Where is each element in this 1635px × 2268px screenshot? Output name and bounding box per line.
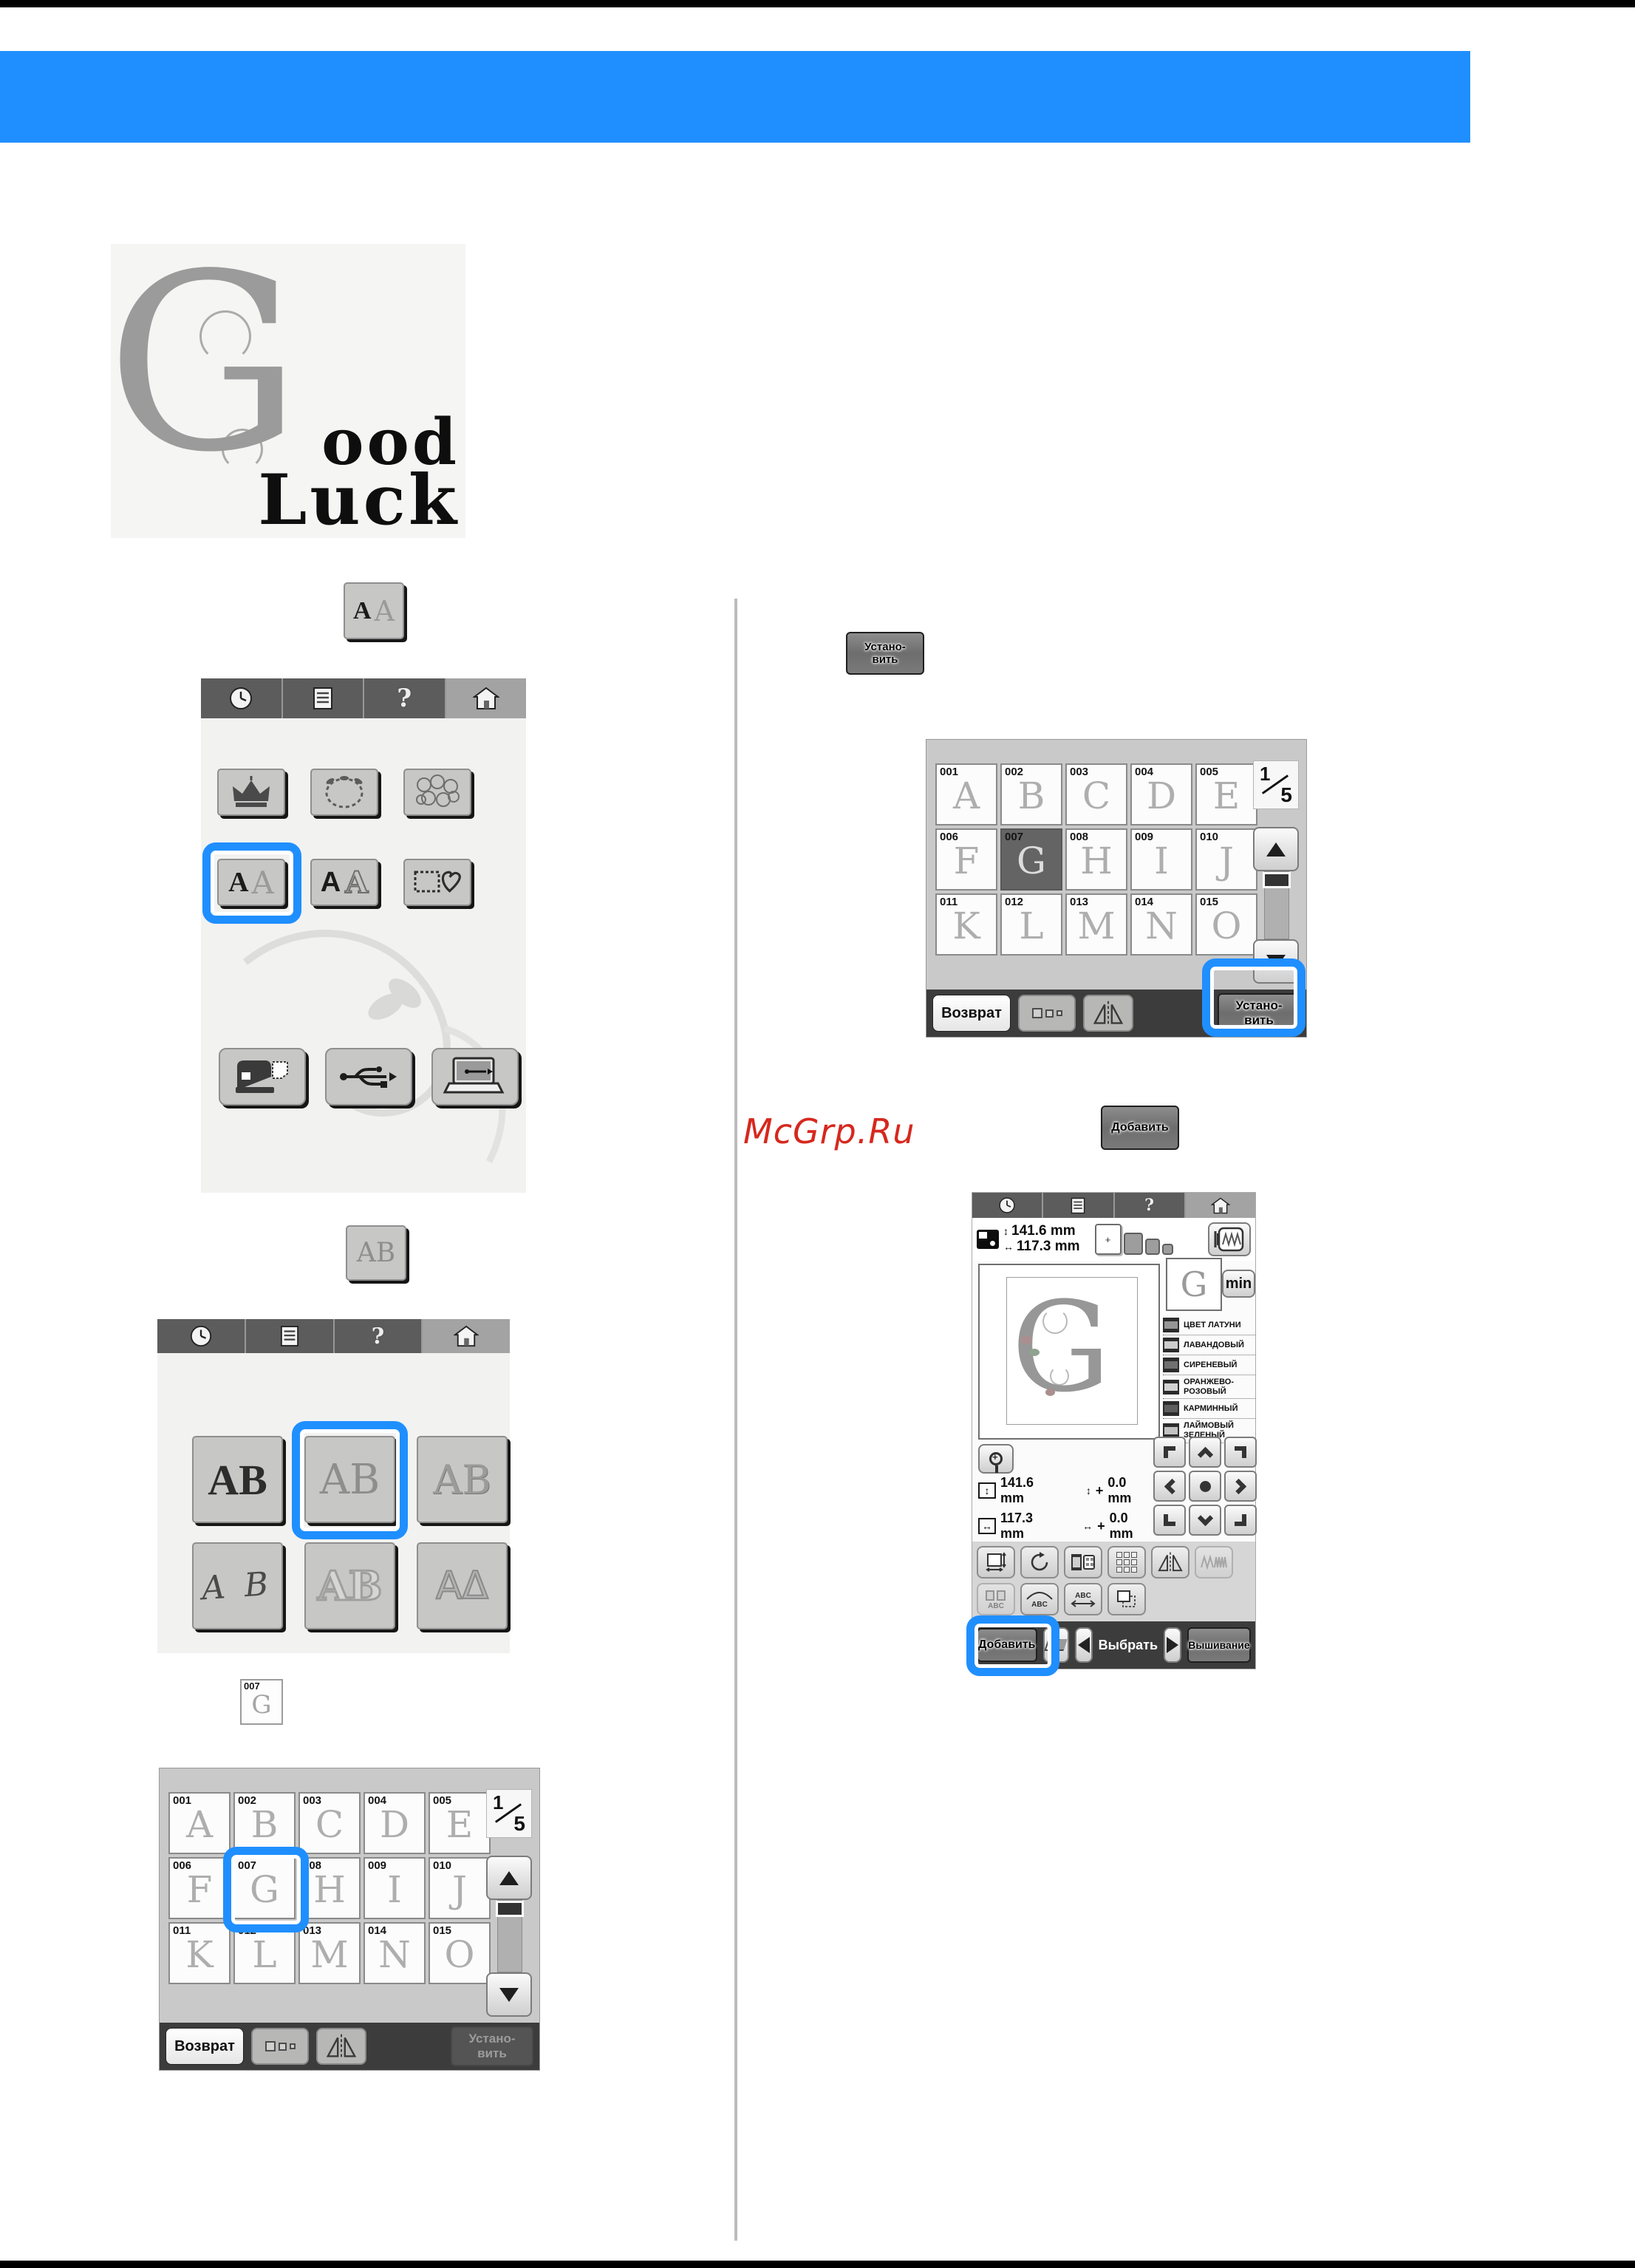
clock-icon	[189, 1324, 213, 1348]
help-icon: ?	[372, 1324, 385, 1349]
tile-number: 013	[303, 1924, 321, 1937]
font-style-greek-button[interactable]: AΔ	[417, 1542, 508, 1630]
select-previous-button[interactable]	[1075, 1627, 1093, 1663]
frame-heart-icon	[413, 868, 462, 897]
thread-color-row: КАРМИННЫЙ	[1163, 1399, 1256, 1419]
crown-patterns-button[interactable]	[217, 769, 285, 816]
letter-tile[interactable]: 005 E	[429, 1792, 491, 1854]
letter-a-outline: A	[345, 865, 368, 900]
letter-tile[interactable]: 004 D	[363, 1792, 426, 1854]
thread-color-name: КАРМИННЫЙ	[1184, 1404, 1238, 1414]
down-arrow-icon	[1266, 955, 1286, 969]
size-small-icon	[1057, 1010, 1062, 1016]
mirror-tool-button[interactable]	[1151, 1546, 1189, 1579]
pattern-preview-area: G	[978, 1264, 1160, 1440]
move-bottom-left-button[interactable]	[1153, 1505, 1186, 1536]
letter-tile-grid: 001 A 002 B 003 C 004 D 005 E 006 F 007 …	[168, 1792, 491, 1984]
letter-tile[interactable]: 008 H	[1065, 828, 1127, 890]
letter-tile[interactable]: 001 A	[935, 763, 997, 825]
help-button[interactable]: ?	[1115, 1193, 1186, 1218]
help-button[interactable]: ?	[364, 678, 446, 718]
move-top-left-button[interactable]	[1153, 1437, 1186, 1468]
corner-tr-icon	[1235, 1446, 1246, 1458]
letter-tile[interactable]: 015 O	[429, 1922, 491, 1984]
tile-number: 014	[368, 1924, 386, 1937]
mirror-icon	[324, 2033, 358, 2060]
font-style-ornate-button[interactable]: AB	[417, 1436, 508, 1523]
bottom-action-bar: Возврат Устано- вить	[160, 2023, 539, 2070]
clock-icon	[998, 1196, 1016, 1214]
width-value: 117.3 mm	[1000, 1511, 1056, 1542]
pattern-size-info: ↕141.6 mm ↔117.3 mm +	[972, 1218, 1255, 1261]
right-arrow-icon	[1167, 1637, 1178, 1653]
letter-tile[interactable]: 003 C	[1065, 763, 1127, 825]
thread-color-row: ОРАНЖЕВО- РОЗОВЫЙ	[1163, 1375, 1256, 1399]
arc-icon	[1025, 1590, 1054, 1601]
document-icon	[1071, 1197, 1085, 1214]
abc-label: ABC	[988, 1602, 1004, 1610]
set-button-disabled[interactable]: Устано- вить	[451, 2026, 533, 2066]
set-button[interactable]: Устано- вить	[1218, 993, 1300, 1033]
thread-color-name: СИРЕНЕВЫЙ	[1184, 1361, 1237, 1370]
sample-word-bottom: Luck	[258, 460, 460, 538]
scroll-down-button[interactable]	[1253, 939, 1299, 984]
plain-alphabet-button[interactable]: A A	[310, 859, 378, 906]
clock-button[interactable]	[157, 1319, 246, 1353]
thread-spool-icon	[1163, 1358, 1179, 1372]
leaf-accent	[1029, 1349, 1040, 1356]
tile-number: 005	[1200, 766, 1218, 778]
decorative-alphabet-button[interactable]: A A	[217, 859, 285, 906]
set-label-line2: вить	[1244, 1013, 1274, 1028]
font-sample: AB	[208, 1455, 267, 1505]
thread-color-name: ЛАВАНДОВЫЙ	[1184, 1341, 1244, 1350]
scrollbar-track[interactable]	[1264, 871, 1289, 939]
set-label-line1: Устано-	[864, 641, 906, 653]
corner-br-icon	[1235, 1514, 1246, 1526]
add-button[interactable]: Добавить	[977, 1628, 1037, 1662]
set-label-line1: Устано-	[468, 2032, 515, 2046]
thread-color-row: ЛАВАНДОВЫЙ	[1163, 1335, 1256, 1355]
return-button[interactable]: Возврат	[932, 995, 1011, 1032]
tile-number: 003	[1070, 766, 1088, 778]
scroll-down-button[interactable]	[486, 1972, 532, 2017]
return-button[interactable]: Возврат	[165, 2028, 244, 2065]
hoop-small-icon	[1145, 1239, 1160, 1255]
font-style-serif-button[interactable]: AB	[192, 1436, 283, 1523]
size-small-icon	[290, 2043, 296, 2049]
tile-number: 002	[1005, 766, 1023, 778]
home-icon	[454, 1325, 479, 1347]
letter-g-thumb-button[interactable]: 007 G	[240, 1679, 283, 1725]
tile-number: 001	[940, 766, 958, 778]
machine-top-bar: ?	[157, 1319, 510, 1353]
pattern-size-icon	[977, 1230, 999, 1249]
delete-button[interactable]	[1043, 1627, 1069, 1663]
letter-tile[interactable]: 014 N	[363, 1922, 426, 1984]
up-arrow-icon	[1266, 842, 1286, 857]
flower-accent	[1020, 1335, 1032, 1344]
letter-tile[interactable]: 013 M	[1065, 893, 1127, 956]
hoop-large-icon: +	[1095, 1224, 1122, 1255]
edit-bottom-bar: Добавить Выбрать Вышивание	[972, 1621, 1255, 1669]
vertical-arrow-icon: ↕	[1003, 1226, 1008, 1237]
scroll-rail: 1 5	[486, 1789, 533, 2017]
tile-number: 007	[1005, 831, 1023, 843]
page-current: 1	[493, 1791, 503, 1814]
size-medium-icon	[279, 2043, 287, 2051]
page-bottom-rule	[0, 2261, 1635, 2268]
home-icon	[1211, 1197, 1230, 1214]
letter-tile[interactable]: 015 O	[1195, 893, 1257, 956]
plus-sign: +	[1096, 1483, 1104, 1499]
help-icon: ?	[397, 684, 412, 713]
scroll-rail: 1 5	[1253, 760, 1300, 984]
corner-bl-icon	[1164, 1514, 1175, 1526]
vertical-offset-icon: ↕	[1086, 1485, 1091, 1496]
watermark: McGrp.Ru	[743, 1111, 915, 1151]
document-icon	[313, 687, 333, 710]
chapter-header-band	[0, 51, 1470, 143]
letter-tile[interactable]: 006 F	[168, 1857, 231, 1919]
size-large-icon	[265, 2041, 276, 2051]
tile-number: 006	[940, 831, 958, 843]
spools-icon	[985, 1589, 1007, 1602]
horizontal-offset-value: 0.0 mm	[1110, 1511, 1152, 1542]
page-top-rule	[0, 0, 1635, 7]
abc-label: ABC	[1031, 1601, 1048, 1609]
embroidery-sample-image: G ood Luck	[111, 244, 465, 538]
thread-palette-tool-button[interactable]	[1064, 1546, 1102, 1579]
left-arrow-icon	[1078, 1637, 1090, 1653]
settings-button[interactable]	[246, 1319, 335, 1353]
letter-a-dark: A	[228, 866, 248, 899]
scrollbar-track[interactable]	[497, 1900, 522, 1972]
letter-a-bold: A	[321, 867, 341, 899]
column-divider	[734, 599, 737, 2241]
letter-tile[interactable]: 007 G	[1000, 828, 1062, 890]
density-icon	[1201, 1554, 1227, 1570]
hoop-size-indicator: +	[1095, 1224, 1173, 1255]
rotate-tool-button[interactable]	[1020, 1546, 1059, 1579]
frame-stitch-icon	[1213, 1227, 1246, 1252]
size-select-button[interactable]	[1018, 995, 1076, 1032]
frame-patterns-button[interactable]	[403, 859, 471, 906]
pattern-width-value: 117.3 mm	[1017, 1239, 1080, 1255]
letter-tile[interactable]: 001 A	[168, 1792, 231, 1854]
home-button[interactable]	[423, 1319, 510, 1353]
thread-color-row: ЦВЕТ ЛАТУНИ	[1163, 1315, 1256, 1335]
move-up-button[interactable]	[1189, 1437, 1221, 1468]
set-label-line1: Устано-	[1235, 998, 1282, 1013]
letter-tile[interactable]: 011 K	[168, 1922, 231, 1984]
alphabet-category-thumb-button[interactable]: A A	[344, 582, 404, 639]
position-arrow-pad	[1153, 1437, 1257, 1536]
font-sample: AΔ	[436, 1564, 488, 1608]
vertical-offset-value: 0.0 mm	[1107, 1475, 1152, 1506]
letter-spacing-tool-button[interactable]: ABC	[1064, 1583, 1102, 1615]
move-bottom-right-button[interactable]	[1224, 1505, 1257, 1536]
page-total: 5	[513, 1812, 525, 1836]
tile-number: 010	[1200, 831, 1218, 843]
letter-tile[interactable]: 004 D	[1130, 763, 1192, 825]
tile-number: 013	[1070, 896, 1088, 908]
tile-number: 007	[238, 1859, 256, 1872]
help-icon: ?	[1144, 1196, 1154, 1215]
pattern-height-value: 141.6 mm	[1011, 1224, 1076, 1239]
screen-letter-select: 001 A 002 B 003 C 004 D 005 E 006 F 007 …	[159, 1768, 540, 2071]
min-label: min	[1226, 1276, 1252, 1293]
up-chevron-icon	[1197, 1446, 1212, 1462]
move-right-button[interactable]	[1224, 1471, 1257, 1502]
thumbnail-letter: G	[1181, 1264, 1208, 1304]
font-sample: AB	[433, 1457, 491, 1503]
hoop-mini-icon	[1162, 1244, 1173, 1255]
ab-floral-label: AB	[357, 1238, 395, 1268]
height-box-icon: ↕	[978, 1482, 996, 1499]
add-label: Добавить	[978, 1638, 1036, 1652]
letter-a-decorative: A	[252, 865, 274, 901]
thread-spool-icon	[1163, 1338, 1179, 1352]
page-total: 5	[1280, 783, 1292, 807]
move-top-right-button[interactable]	[1224, 1437, 1257, 1468]
tile-number: 015	[1200, 896, 1218, 908]
thread-color-name: ЦВЕТ ЛАТУНИ	[1184, 1321, 1241, 1330]
corner-tl-icon	[1164, 1446, 1175, 1458]
min-button[interactable]: min	[1222, 1270, 1255, 1298]
page-indicator: 1 5	[486, 1789, 532, 1838]
letter-tile[interactable]: 007 G	[233, 1857, 296, 1919]
mirror-button[interactable]	[1083, 995, 1133, 1032]
font-style-floral-button[interactable]: AB	[304, 1436, 395, 1523]
mirror-icon	[1091, 1000, 1125, 1026]
letter-tile[interactable]: 003 C	[298, 1792, 361, 1854]
thread-spool-icon	[1163, 1318, 1179, 1332]
center-dot-icon	[1200, 1481, 1211, 1492]
tile-number: 003	[303, 1794, 321, 1807]
tile-number: 002	[238, 1794, 256, 1807]
tile-number: 006	[173, 1859, 191, 1872]
letter-tile-grid: 001 A 002 B 003 C 004 D 005 E 006 F 007 …	[935, 763, 1257, 956]
applique-icon	[1116, 1589, 1138, 1610]
clock-button[interactable]	[972, 1193, 1043, 1218]
scroll-up-button[interactable]	[1253, 827, 1299, 871]
letter-a-decorative: A	[375, 595, 395, 627]
magnifier-icon	[989, 1452, 1003, 1465]
tile-number: 008	[303, 1859, 321, 1872]
letter-tile[interactable]: 014 N	[1130, 893, 1192, 956]
mirror-button[interactable]	[316, 2028, 366, 2065]
font-style-script-button[interactable]: A B	[192, 1542, 283, 1630]
machine-top-bar: ?	[201, 678, 526, 718]
screen-letter-selected: 001 A 002 B 003 C 004 D 005 E 006 F 007 …	[926, 739, 1307, 1038]
crown-icon	[230, 776, 273, 808]
letter-tile[interactable]: 010 J	[1195, 828, 1257, 890]
embroidery-frame-button[interactable]	[1208, 1222, 1251, 1256]
letter-tile[interactable]: 009 I	[363, 1857, 426, 1919]
pattern-bounding-box: G	[1006, 1277, 1138, 1425]
settings-button[interactable]	[283, 678, 365, 718]
move-left-button[interactable]	[1153, 1471, 1186, 1502]
tile-number: 008	[1070, 831, 1088, 843]
thread-color-row: СИРЕНЕВЫЙ	[1163, 1355, 1256, 1375]
tile-number: 014	[1135, 896, 1153, 908]
machine-memory-button[interactable]	[219, 1048, 306, 1106]
screen-pattern-edit: ? ↕141.6 mm ↔117.3 mm + G	[972, 1192, 1256, 1669]
down-chevron-icon	[1197, 1510, 1212, 1525]
horizontal-arrow-icon: ↔	[1003, 1242, 1014, 1253]
tile-number: 009	[368, 1859, 386, 1872]
font-sample: A B	[201, 1564, 274, 1607]
right-chevron-icon	[1230, 1478, 1246, 1494]
font-sample: AB	[318, 1562, 383, 1610]
screen-pattern-type-select: ? A A A A	[201, 678, 526, 1193]
select-next-button[interactable]	[1164, 1627, 1181, 1663]
letter-tile[interactable]: 010 J	[429, 1857, 491, 1919]
font-style-thumb-button[interactable]: AB	[346, 1225, 406, 1281]
letter-tile[interactable]: 002 B	[1000, 763, 1062, 825]
tile-number: 001	[173, 1794, 191, 1807]
abc-label: ABC	[1075, 1592, 1091, 1600]
pattern-thumbnail: G	[1166, 1258, 1222, 1311]
thread-spool-icon	[1163, 1380, 1179, 1394]
set-label-line2: вить	[872, 653, 898, 666]
laptop-usb-icon	[443, 1055, 507, 1098]
tile-number: 011	[173, 1924, 191, 1937]
computer-link-button[interactable]	[431, 1048, 519, 1106]
letter-a-dark: A	[353, 597, 372, 625]
bottom-action-bar: Возврат Устано- вить	[926, 990, 1306, 1037]
embroidery-machine-icon	[233, 1056, 292, 1097]
hoop-medium-icon	[1124, 1233, 1143, 1255]
tile-number: 015	[433, 1924, 451, 1937]
thread-color-name: ОРАНЖЕВО- РОЗОВЫЙ	[1184, 1378, 1234, 1396]
scrollbar-thumb[interactable]	[1263, 872, 1291, 888]
embroider-button[interactable]: Вышивание	[1187, 1627, 1251, 1663]
set-label-line2: вить	[477, 2046, 507, 2061]
spool-palette-icon	[1071, 1553, 1096, 1572]
screen-font-style-select: ? AB AB AB A B AB AΔ	[157, 1319, 510, 1653]
usb-icon	[338, 1062, 400, 1092]
size-select-button[interactable]	[251, 2028, 309, 2065]
rotate-icon	[1028, 1551, 1051, 1573]
size-medium-icon	[1045, 1009, 1054, 1018]
letter-tile[interactable]: 006 F	[935, 828, 997, 890]
page-current: 1	[1260, 763, 1270, 786]
size-large-icon	[1032, 1008, 1042, 1018]
arc-text-tool-button[interactable]: ABC	[1020, 1583, 1059, 1615]
move-down-button[interactable]	[1189, 1505, 1221, 1536]
add-thumb-button[interactable]: Добавить	[1101, 1106, 1179, 1150]
pattern-letter: G	[1011, 1266, 1110, 1428]
document-icon	[280, 1325, 299, 1347]
letter-tile[interactable]: 013 M	[298, 1922, 361, 1984]
wreath-patterns-button[interactable]	[310, 769, 378, 816]
clock-icon	[228, 686, 253, 711]
quilt-icon	[414, 774, 461, 810]
machine-top-bar: ?	[972, 1193, 1255, 1218]
letter-tile[interactable]: 009 I	[1130, 828, 1192, 890]
help-button[interactable]: ?	[335, 1319, 423, 1353]
applique-tool-button[interactable]	[1107, 1583, 1146, 1615]
usb-media-button[interactable]	[325, 1048, 412, 1106]
grid-icon	[1116, 1552, 1137, 1573]
resize-tool-button[interactable]	[977, 1546, 1015, 1579]
letter-tile[interactable]: 011 K	[935, 893, 997, 956]
multicolor-text-tool-button[interactable]: ABC	[977, 1583, 1015, 1615]
zoom-button[interactable]	[978, 1444, 1014, 1474]
home-button[interactable]	[1186, 1193, 1255, 1218]
tile-number: 012	[238, 1924, 256, 1937]
width-box-icon: ↔	[978, 1518, 996, 1534]
tile-number: 004	[1135, 766, 1153, 778]
density-tool-button[interactable]	[1195, 1546, 1233, 1579]
tile-number: 010	[433, 1859, 451, 1872]
layout-grid-tool-button[interactable]	[1107, 1546, 1146, 1579]
resize-icon	[985, 1552, 1007, 1573]
pattern-number: 007	[244, 1680, 260, 1692]
scrollbar-thumb[interactable]	[496, 1901, 524, 1917]
tile-number: 005	[433, 1794, 451, 1807]
page-indicator: 1 5	[1253, 760, 1299, 809]
scroll-up-button[interactable]	[486, 1856, 532, 1900]
set-thumb-button[interactable]: Устано- вить	[846, 632, 924, 675]
add-label: Добавить	[1111, 1121, 1169, 1134]
flower-accent	[1045, 1389, 1055, 1396]
tile-number: 004	[368, 1794, 386, 1807]
clock-button[interactable]	[201, 678, 283, 718]
center-button[interactable]	[1189, 1471, 1221, 1502]
letter-tile[interactable]: 012 L	[233, 1922, 296, 1984]
down-arrow-icon	[499, 1988, 519, 2002]
letter-tile[interactable]: 002 B	[233, 1792, 296, 1854]
home-button[interactable]	[446, 678, 527, 718]
tile-number: 011	[940, 896, 958, 908]
tile-number: 012	[1005, 896, 1023, 908]
letter-tile[interactable]: 012 L	[1000, 893, 1062, 956]
quilt-patterns-button[interactable]	[403, 769, 471, 816]
select-label: Выбрать	[1099, 1638, 1158, 1653]
horizontal-offset-icon: ↔	[1082, 1520, 1093, 1532]
height-value: 141.6 mm	[1000, 1475, 1059, 1506]
eraser-icon	[1044, 1639, 1067, 1651]
wreath-icon	[321, 774, 367, 811]
width-arrow-icon	[1071, 1600, 1096, 1607]
thread-spool-icon	[1163, 1423, 1179, 1438]
left-chevron-icon	[1164, 1478, 1179, 1494]
embroider-label: Вышивание	[1188, 1639, 1249, 1651]
letter-tile[interactable]: 008 H	[298, 1857, 361, 1919]
letter-tile[interactable]: 005 E	[1195, 763, 1257, 825]
tile-number: 009	[1135, 831, 1153, 843]
settings-button[interactable]	[1043, 1193, 1114, 1218]
thread-color-list: ЦВЕТ ЛАТУНИ ЛАВАНДОВЫЙ СИРЕНЕВЫЙ ОРАНЖЕВ…	[1163, 1315, 1256, 1443]
font-sample: AB	[320, 1456, 380, 1504]
edit-tool-panel: ABC ABC ABC	[972, 1542, 1255, 1623]
up-arrow-icon	[499, 1871, 519, 1885]
thread-spool-icon	[1163, 1401, 1179, 1416]
mirror-icon	[1156, 1551, 1184, 1573]
font-style-outline-button[interactable]: AB	[304, 1542, 395, 1630]
plus-sign: +	[1097, 1519, 1105, 1534]
home-icon	[473, 687, 499, 710]
